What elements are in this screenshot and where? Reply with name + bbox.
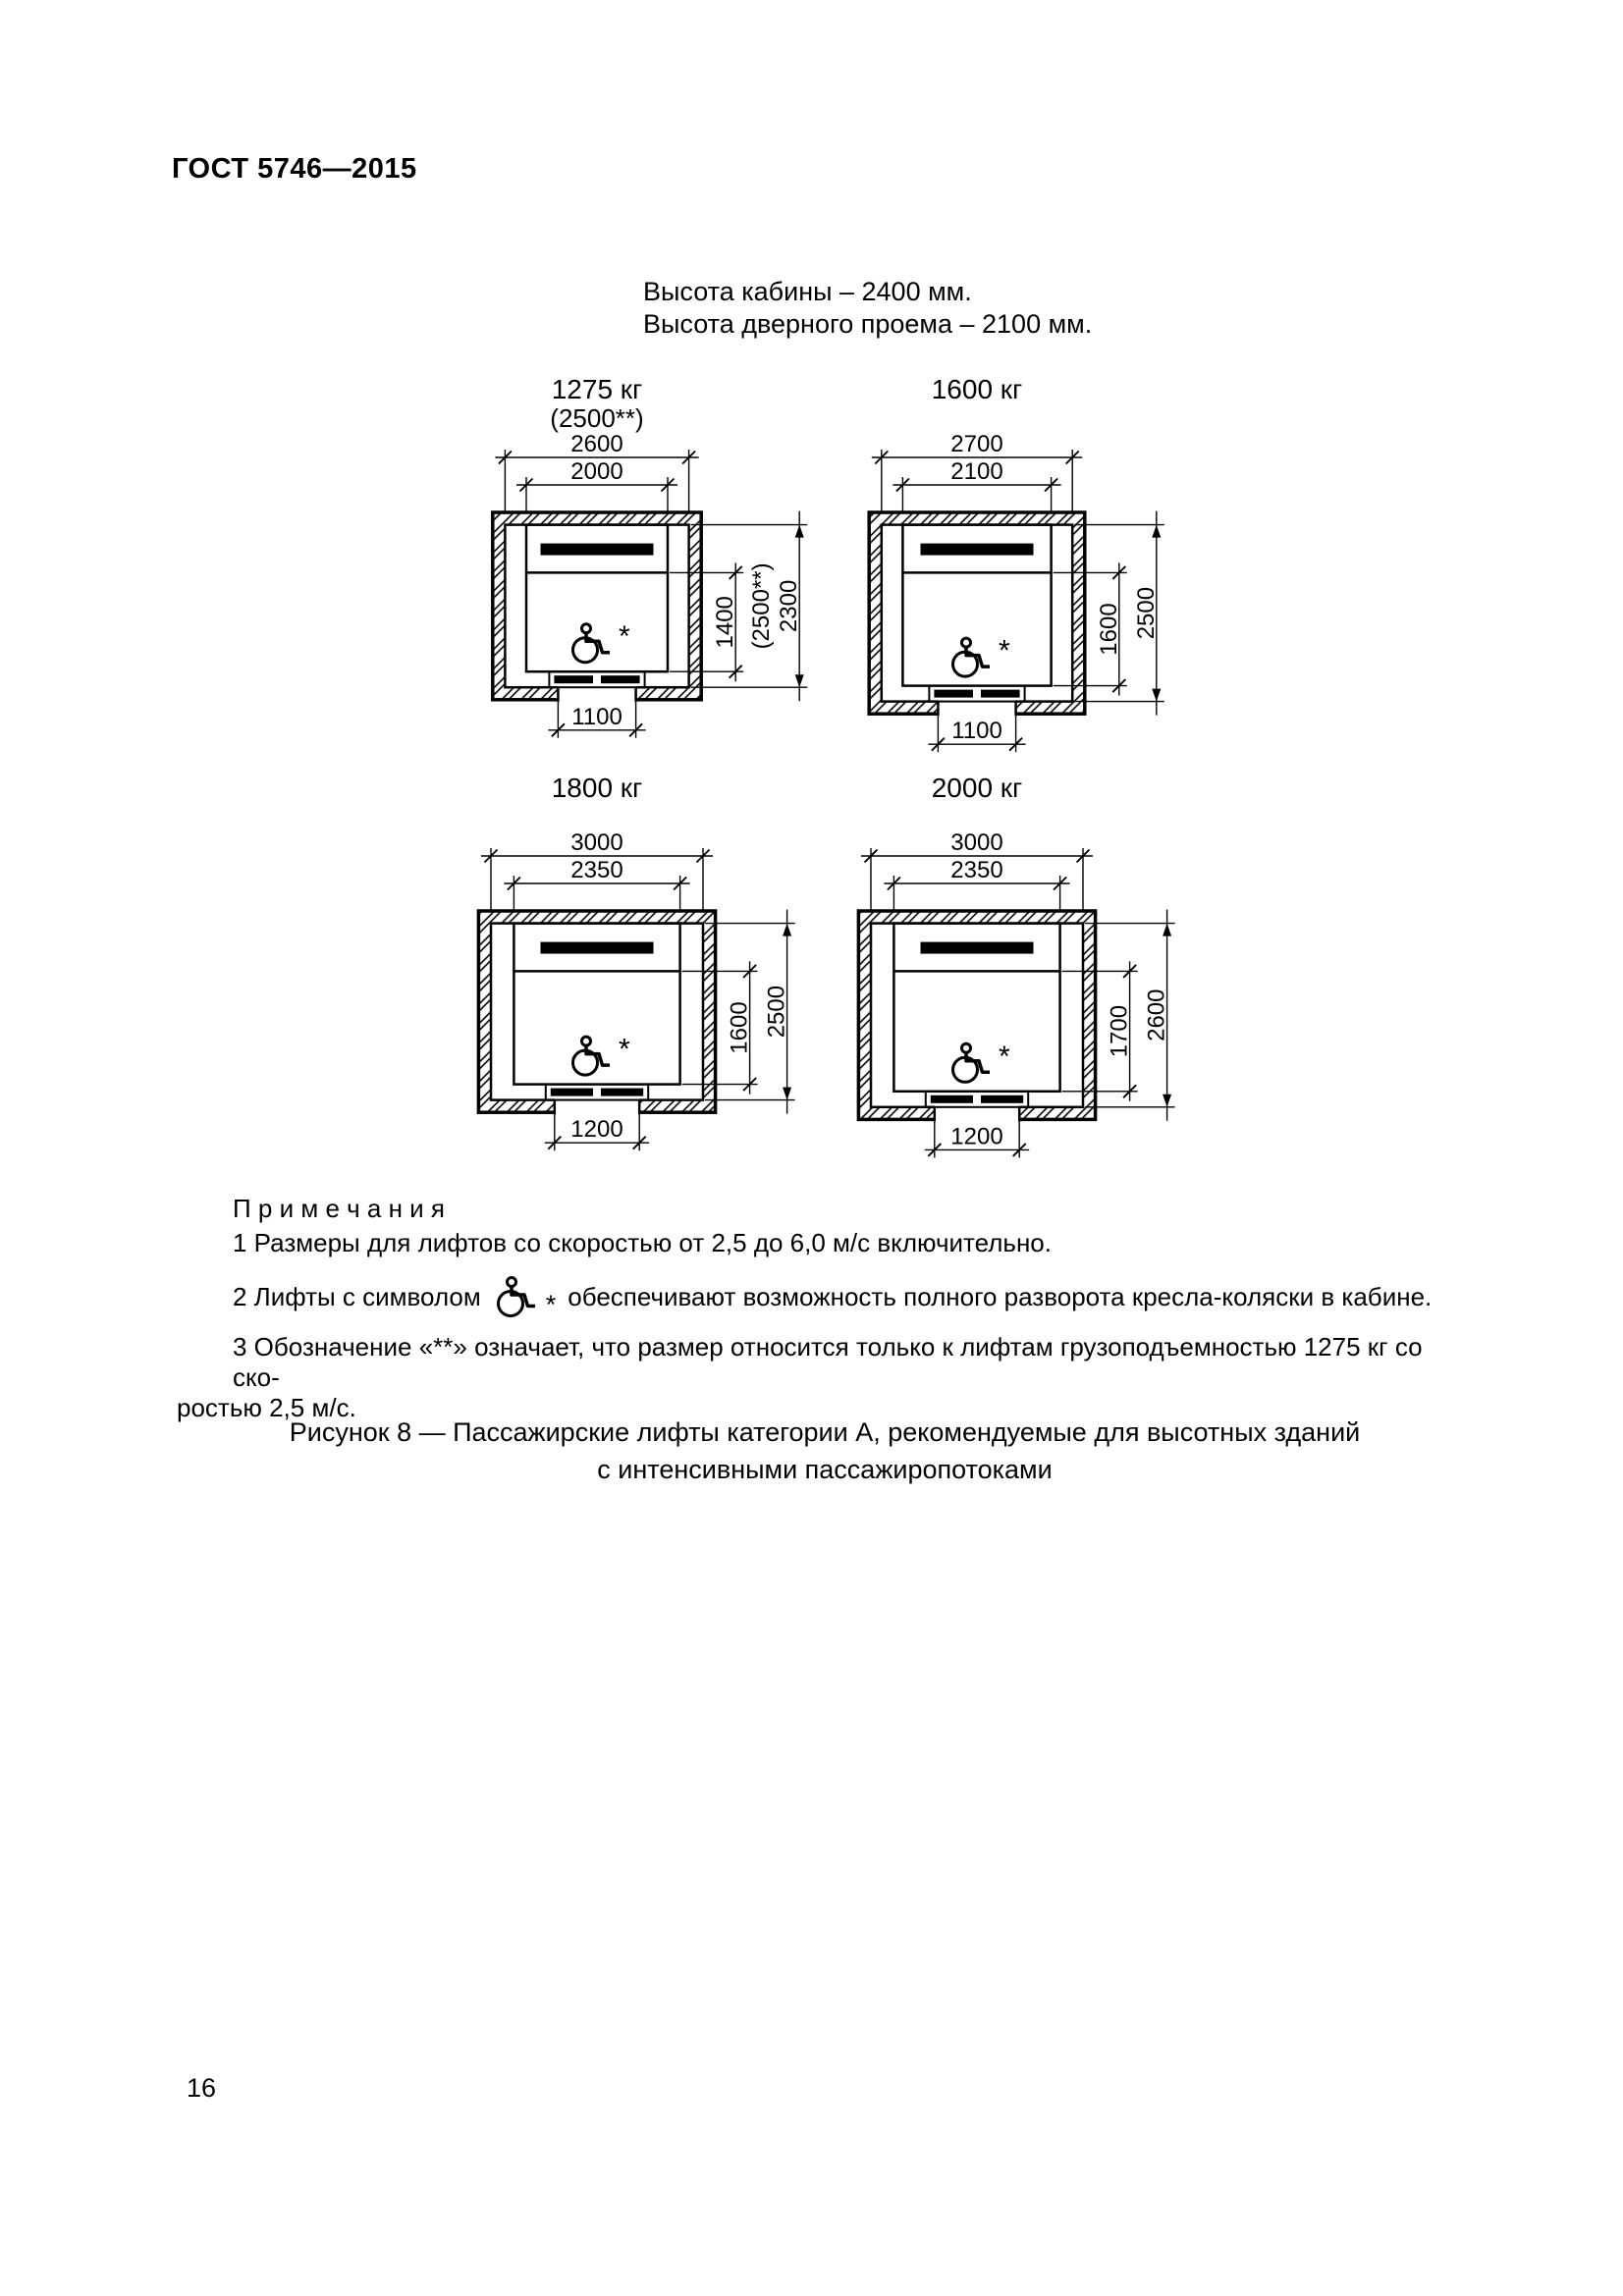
lift-plan-drawing: *2600200014002300(2500**)1100 [415, 432, 828, 771]
notes-block: П р и м е ч а н и я 1 Размеры для лифтов… [177, 1194, 1473, 1423]
svg-text:1600: 1600 [727, 1001, 753, 1053]
diagram-title: 1800 кг [415, 774, 779, 803]
counterweight-bar [541, 544, 654, 556]
notes-heading: П р и м е ч а н и я [177, 1194, 1473, 1224]
svg-text:2500: 2500 [1133, 587, 1160, 639]
lift-plan-svg: *27002100160025001100 [795, 432, 1208, 771]
wheelchair-icon [953, 1043, 991, 1082]
dim-cabin-width: 2350 [884, 857, 1069, 911]
wheelchair-icon [573, 1037, 611, 1075]
diagram-title: 2000 кг [795, 774, 1159, 803]
page-number: 16 [187, 2073, 216, 2104]
diagram-subtitle: (2500**) [415, 404, 779, 432]
svg-text:2100: 2100 [950, 458, 1002, 485]
dim-cabin-depth: 1700 [1062, 961, 1138, 1100]
dim-cabin-depth: 1600 [1054, 562, 1127, 695]
dim-cabin-width: 2100 [893, 458, 1060, 512]
cabin-asterisk: * [619, 1034, 630, 1066]
note-2-asterisk: * [546, 1290, 557, 1320]
dim-cabin-depth: 1600 [682, 961, 758, 1094]
door-panels [549, 671, 644, 687]
door-panels [546, 1085, 648, 1100]
note-3-line1: 3 Обозначение «**» означает, что размер … [177, 1332, 1473, 1393]
counterweight-bar [921, 544, 1034, 556]
svg-text:2350: 2350 [570, 857, 622, 883]
svg-text:3000: 3000 [570, 830, 622, 856]
lift-diagram-2000kg: 2000 кг *30002350170026001200 [795, 774, 1208, 1169]
diagram-title: 1275 кг [415, 375, 779, 404]
cabin-asterisk: * [619, 620, 630, 653]
svg-text:1100: 1100 [951, 718, 1002, 744]
note-2-prefix: 2 Лифты с символом [233, 1282, 481, 1311]
svg-text:2700: 2700 [950, 432, 1002, 457]
note-2-suffix: обеспечивают возможность полного разворо… [568, 1282, 1432, 1311]
lift-plan-drawing: *30002350170026001200 [795, 830, 1208, 1169]
diagram-title: 1600 кг [795, 375, 1159, 404]
svg-text:1200: 1200 [950, 1123, 1002, 1149]
svg-text:1100: 1100 [571, 704, 622, 730]
svg-text:1200: 1200 [570, 1116, 622, 1143]
dim-shaft-depth: 2300(2500**) [691, 511, 808, 702]
counterweight-bar [541, 942, 654, 954]
counterweight-bar [921, 942, 1034, 954]
cabin-height-note: Высота кабины – 2400 мм. [643, 276, 1092, 308]
dim-cabin-depth: 1400 [670, 562, 743, 681]
lift-plan-drawing: *27002100160025001100 [795, 432, 1208, 771]
svg-text:1600: 1600 [1096, 603, 1122, 655]
lift-diagram-1275kg: 1275 кг (2500**) *2600200014002300(2500*… [415, 375, 828, 771]
door-panels [926, 1092, 1028, 1107]
standard-number-header: ГОСТ 5746—2015 [172, 153, 417, 186]
lift-plan-svg: *30002350170026001200 [795, 830, 1208, 1169]
figure-caption: Рисунок 8 — Пассажирские лифты категории… [177, 1414, 1473, 1488]
cabin-asterisk: * [999, 1041, 1010, 1073]
lift-diagram-1800kg: 1800 кг *30002350160025001200 [415, 774, 828, 1169]
diagram-subtitle [795, 803, 1159, 830]
svg-text:2000: 2000 [570, 458, 622, 485]
svg-text:2600: 2600 [1144, 989, 1170, 1041]
lift-plan-drawing: *30002350160025001200 [415, 830, 828, 1169]
figure-caption-line2: с интенсивными пассажиропотоками [177, 1451, 1473, 1488]
intro-text: Высота кабины – 2400 мм. Высота дверного… [643, 276, 1092, 341]
lift-plan-svg: *2600200014002300(2500**)1100 [415, 432, 828, 771]
wheelchair-icon [573, 624, 611, 663]
svg-text:(2500**): (2500**) [748, 562, 775, 649]
note-1: 1 Размеры для лифтов со скоростью от 2,5… [177, 1228, 1473, 1258]
svg-text:2600: 2600 [570, 432, 622, 457]
wheelchair-icon [495, 1274, 540, 1326]
diagram-subtitle [415, 803, 779, 830]
cabin-asterisk: * [999, 635, 1010, 667]
note-2: 2 Лифты с символом*обеспечивают возможно… [177, 1274, 1473, 1326]
lift-plan-svg: *30002350160025001200 [415, 830, 828, 1169]
document-page: ГОСТ 5746—2015 Высота кабины – 2400 мм. … [0, 0, 1623, 2296]
lift-diagram-1600kg: 1600 кг *27002100160025001100 [795, 375, 1208, 771]
shaft-walls [493, 512, 701, 702]
wheelchair-icon [953, 638, 991, 676]
dim-cabin-width: 2350 [504, 857, 689, 911]
dim-cabin-width: 2000 [516, 458, 677, 512]
door-panels [929, 686, 1024, 702]
svg-text:2500: 2500 [764, 986, 790, 1038]
svg-text:2350: 2350 [950, 857, 1002, 883]
svg-text:3000: 3000 [950, 830, 1002, 856]
svg-text:1400: 1400 [712, 596, 738, 648]
diagram-subtitle [795, 404, 1159, 432]
figure-caption-line1: Рисунок 8 — Пассажирские лифты категории… [177, 1414, 1473, 1451]
svg-text:1700: 1700 [1107, 1005, 1133, 1057]
door-opening-height-note: Высота дверного проема – 2100 мм. [643, 308, 1092, 341]
